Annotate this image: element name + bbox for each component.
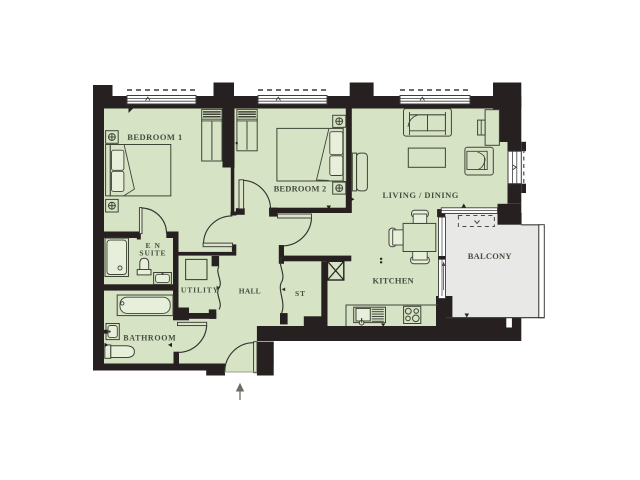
svg-text:BATHROOM: BATHROOM (123, 333, 176, 342)
svg-text:SUITE: SUITE (139, 249, 166, 258)
svg-text:HALL: HALL (239, 286, 261, 295)
svg-text:BEDROOM 1: BEDROOM 1 (127, 132, 182, 142)
svg-text:BEDROOM 2: BEDROOM 2 (274, 184, 327, 194)
svg-text:KITCHEN: KITCHEN (373, 276, 415, 286)
svg-text:LIVING / DINING: LIVING / DINING (383, 190, 459, 200)
svg-text:ST: ST (295, 289, 306, 298)
svg-text:UTILITY: UTILITY (181, 286, 219, 295)
svg-text:BALCONY: BALCONY (468, 251, 512, 261)
